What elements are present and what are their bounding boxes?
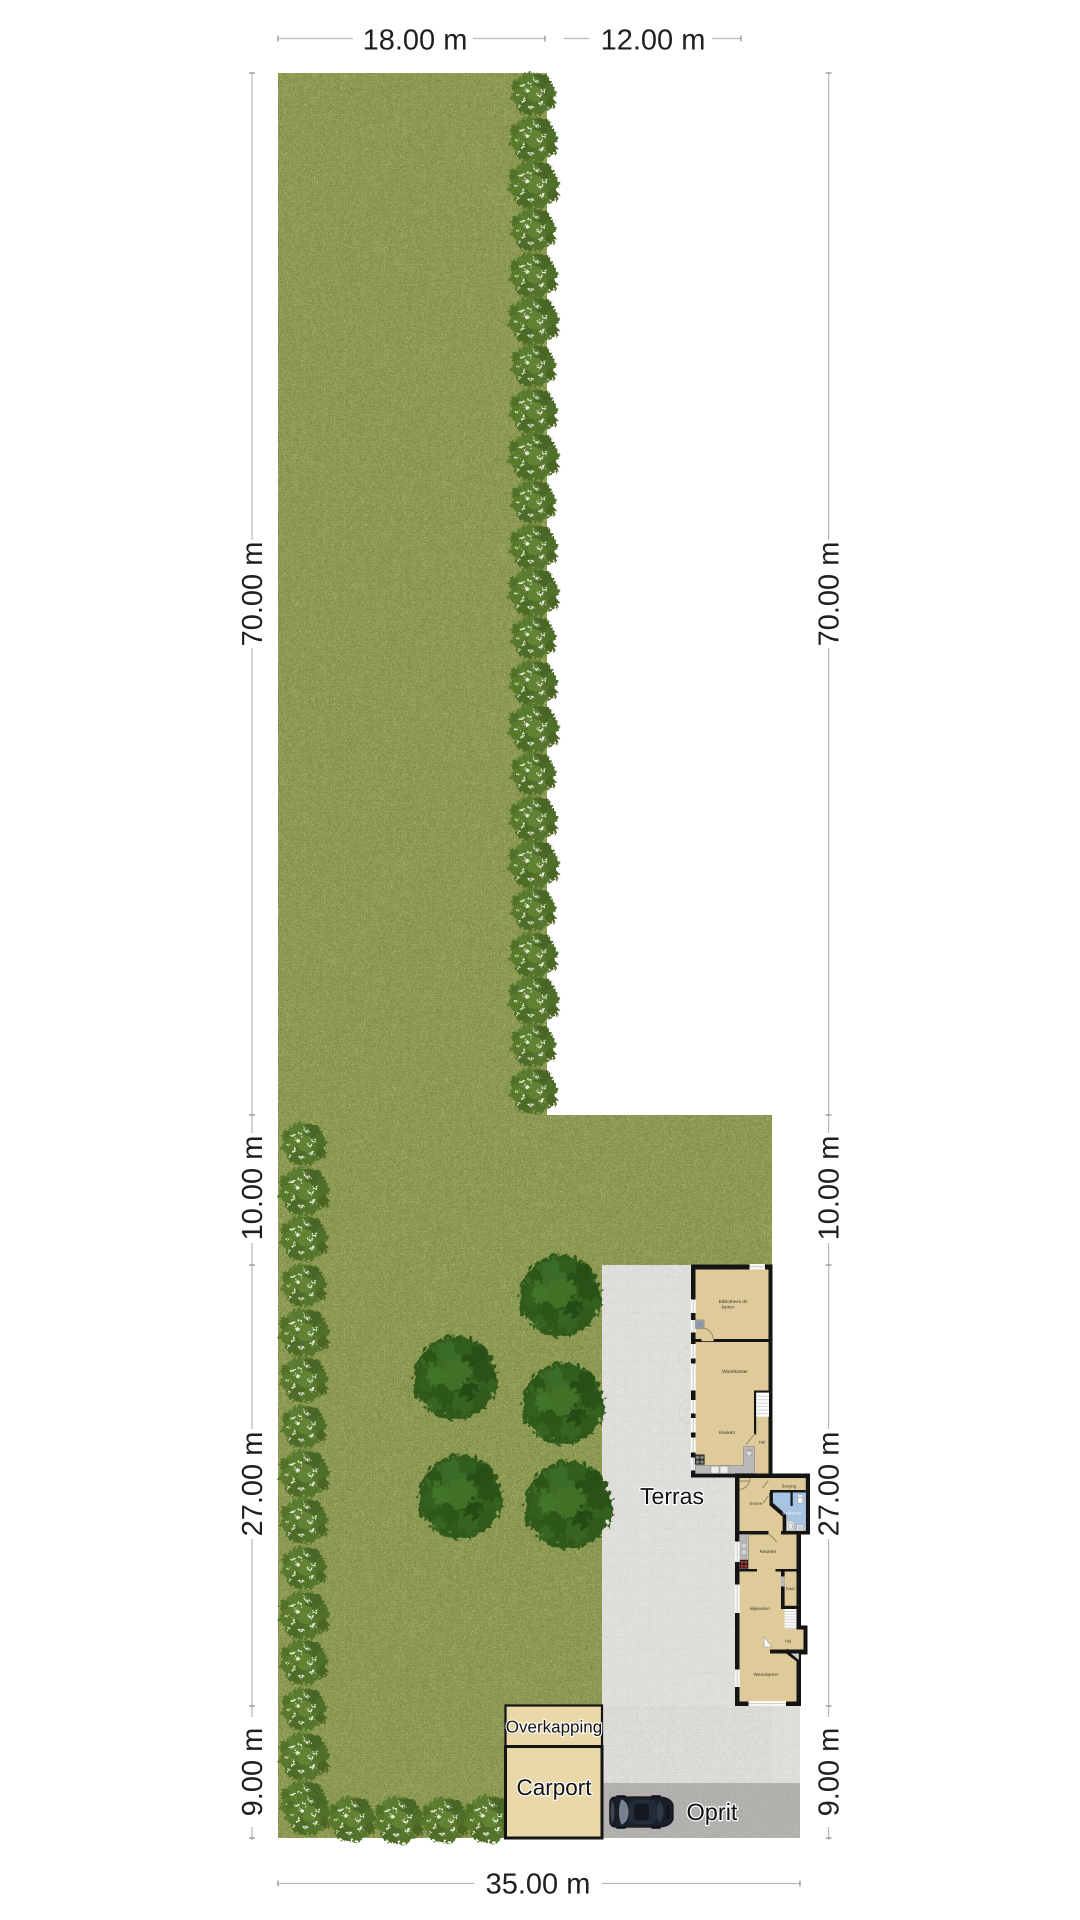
- svg-text:Bibliotheek de: Bibliotheek de: [719, 1299, 748, 1304]
- svg-text:9.00 m: 9.00 m: [814, 1728, 846, 1817]
- svg-text:Carport: Carport: [516, 1775, 592, 1800]
- svg-text:70.00 m: 70.00 m: [237, 542, 269, 647]
- svg-text:Berging: Berging: [782, 1484, 797, 1489]
- svg-text:27.00 m: 27.00 m: [237, 1432, 269, 1537]
- svg-text:Overkapping: Overkapping: [506, 1718, 602, 1737]
- svg-text:27.00 m: 27.00 m: [814, 1432, 846, 1537]
- svg-text:12.00 m: 12.00 m: [601, 25, 706, 57]
- svg-text:Oprit: Oprit: [687, 1799, 738, 1825]
- svg-text:Badkamer: Badkamer: [782, 1511, 802, 1516]
- svg-text:Kast: Kast: [786, 1586, 795, 1591]
- svg-text:Woonkamer: Woonkamer: [754, 1672, 779, 1677]
- svg-text:9.00 m: 9.00 m: [237, 1728, 269, 1817]
- svg-text:10.00 m: 10.00 m: [237, 1136, 269, 1241]
- svg-text:Entree: Entree: [750, 1501, 763, 1506]
- svg-text:Hal: Hal: [785, 1639, 791, 1644]
- svg-text:kamer: kamer: [722, 1305, 735, 1310]
- svg-text:Terras: Terras: [640, 1483, 704, 1509]
- svg-text:70.00 m: 70.00 m: [814, 542, 846, 647]
- svg-text:18.00 m: 18.00 m: [363, 25, 468, 57]
- svg-text:Keuken: Keuken: [719, 1430, 736, 1436]
- svg-text:35.00 m: 35.00 m: [486, 1869, 591, 1901]
- svg-text:Bijkeuken: Bijkeuken: [750, 1606, 770, 1611]
- svg-text:Keuken: Keuken: [760, 1549, 777, 1555]
- svg-text:10.00 m: 10.00 m: [814, 1136, 846, 1241]
- svg-text:Hal: Hal: [759, 1440, 765, 1445]
- svg-text:Woonkamer: Woonkamer: [722, 1369, 748, 1375]
